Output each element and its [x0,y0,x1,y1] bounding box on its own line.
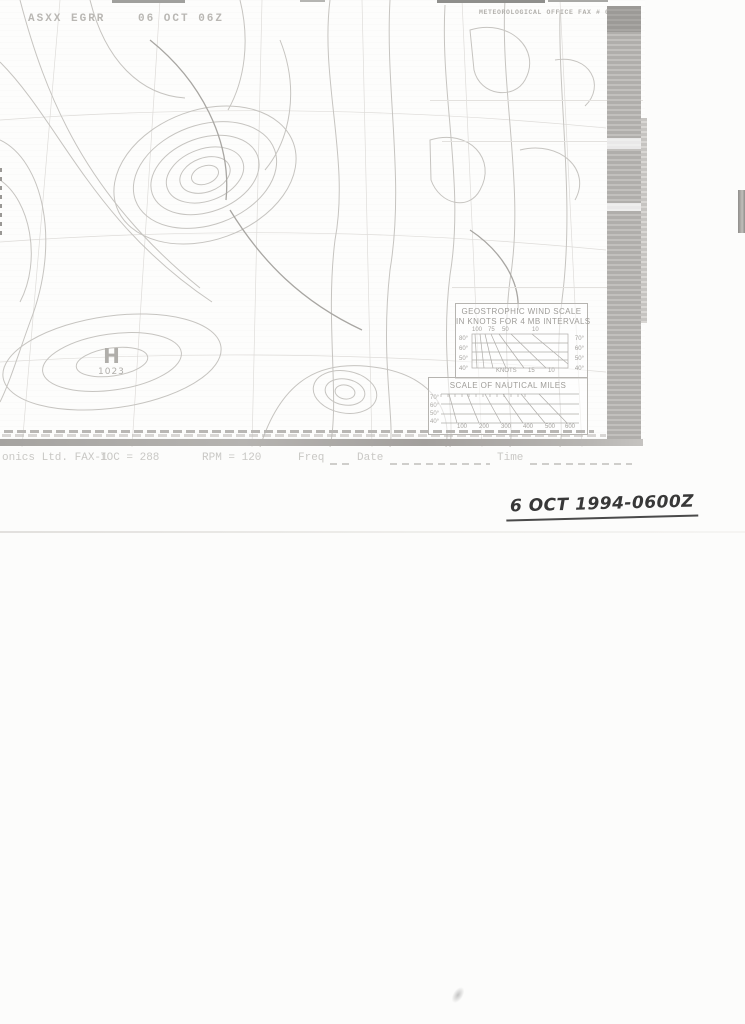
nautical-miles-scale-box: SCALE OF NAUTICAL MILES 70° 60° 50° 40° … [428,377,588,435]
scan-edge-mark [548,0,608,2]
nm-scale-lat-label: 50° [430,411,439,417]
scan-artifact-band-extension [641,118,647,323]
wind-scale-title-line2: IN KNOTS FOR 4 MB INTERVALS [456,317,587,327]
wind-scale-top-label: 10 [532,327,539,333]
nm-scale-lat-label: 60° [430,403,439,409]
chart-bottom-scan-strip [0,439,643,446]
wind-scale-lat-label: 70° [575,336,584,342]
wind-scale-lat-label: 60° [575,346,584,352]
wind-scale-lat-label: 50° [459,356,468,362]
nm-scale-title: SCALE OF NAUTICAL MILES [429,378,587,391]
wind-scale-lat-label: 80° [459,336,468,342]
freq-fill-in-line [330,463,352,465]
scan-edge-mark [300,0,325,2]
fax-freq-label: Freq [298,452,324,464]
wind-scale-bottom-label: 10 [548,368,555,374]
nm-scale-lat-label: 70° [430,395,439,401]
time-fill-in-line [530,463,632,465]
wind-scale-bottom-label: KNOTS [496,368,517,374]
wind-scale-lat-label: 40° [575,366,584,372]
high-pressure-letter: H [98,346,125,366]
high-pressure-value: 1023 [98,368,125,377]
scan-artifact-band [607,6,641,444]
fax-header-station-code: ASXX EGRR [28,13,105,27]
scan-edge-dashes [0,168,2,240]
band-dark-top [607,6,641,32]
wind-scale-lat-label: 40° [459,366,468,372]
illegible-attribution-text [4,430,594,433]
band-gap [607,203,641,211]
scan-edge-mark [437,0,545,3]
date-fill-in-line [390,463,490,465]
scan-edge-mark [112,0,185,3]
fax-header-datetime-code: 06 OCT 06Z [138,13,224,27]
high-pressure-label: H 1023 [98,346,125,377]
paper-crease-line [0,531,745,533]
handwritten-date-annotation: 6 OCT 1994-0600Z [506,491,699,521]
fax-time-label: Time [497,452,523,464]
wind-scale-grid-graphic [456,327,587,375]
wind-scale-bottom-label: 15 [528,368,535,374]
wind-scale-top-label: 75 [488,327,495,333]
band-gap [607,138,641,149]
fax-machine-footer: onics Ltd. FAX-1 IOC = 288 RPM = 120 Fre… [0,452,745,468]
geostrophic-wind-scale-box: GEOSTROPHIC WIND SCALE IN KNOTS FOR 4 MB… [455,303,588,379]
scanned-weather-fax-page: ASXX EGRR 06 OCT 06Z METEOROLOGICAL OFFI… [0,0,745,1024]
wind-scale-title-line1: GEOSTROPHIC WIND SCALE [456,304,587,317]
fax-date-label: Date [357,452,383,464]
wind-scale-top-label: 50 [502,327,509,333]
fax-header-office-label: METEOROLOGICAL OFFICE FAX # 06 [479,9,614,23]
nm-scale-diagram: 70° 60° 50° 40° 100 200 300 400 500 600 [429,391,587,431]
nm-scale-lat-label: 40° [430,419,439,425]
pen-smudge-mark [449,985,467,1006]
fax-ioc-setting: IOC = 288 [100,452,159,464]
fax-rpm-setting: RPM = 120 [202,452,261,464]
fax-device-fragment: onics Ltd. FAX-1 [2,452,108,464]
wind-scale-diagram: 100 75 50 10 80° 60° 50° 40° 70° 60° 50°… [456,327,587,375]
adjacent-page-edge [738,190,745,233]
weather-chart-scan: ASXX EGRR 06 OCT 06Z METEOROLOGICAL OFFI… [0,0,645,447]
wind-scale-lat-label: 60° [459,346,468,352]
wind-scale-lat-label: 50° [575,356,584,362]
wind-scale-top-label: 100 [472,327,482,333]
illegible-attribution-text [2,434,606,437]
